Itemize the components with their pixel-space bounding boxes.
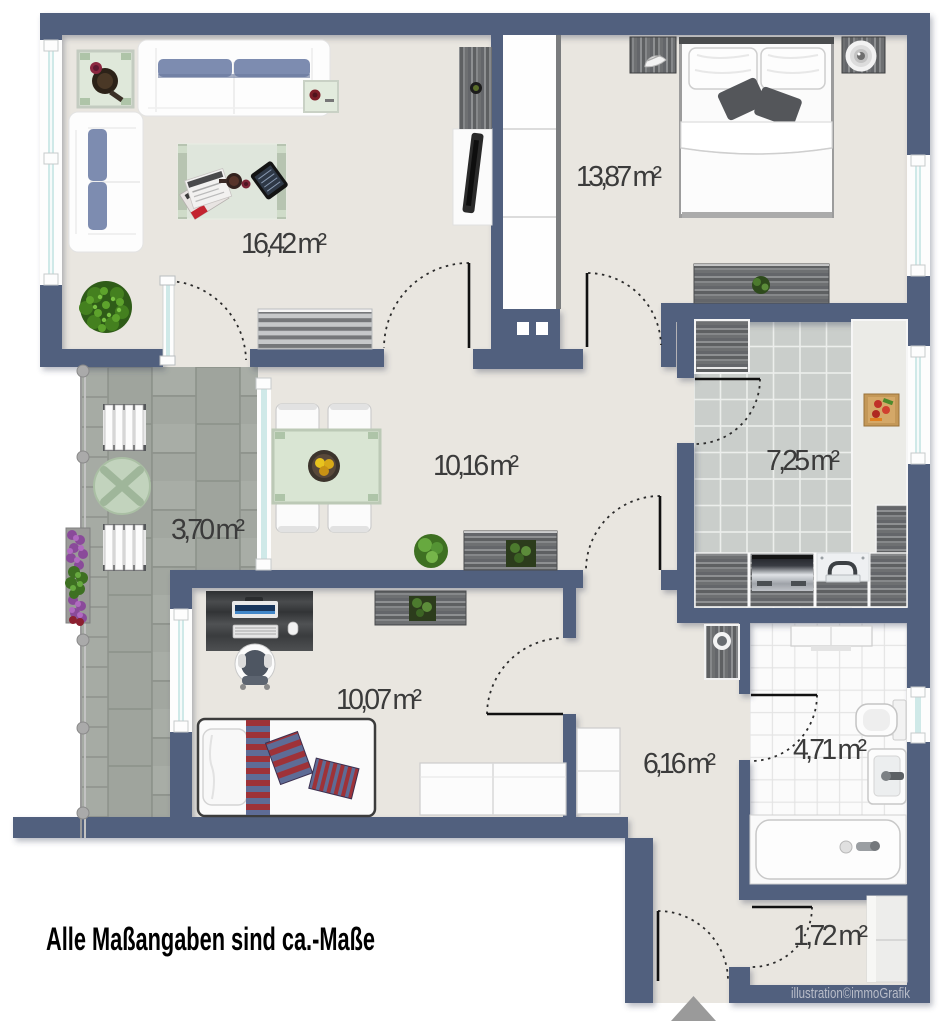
svg-text:10,07 m²: 10,07 m²: [336, 684, 422, 716]
svg-text:4,71 m²: 4,71 m²: [793, 734, 867, 766]
svg-text:16,42 m²: 16,42 m²: [241, 228, 327, 260]
svg-text:6,16 m²: 6,16 m²: [643, 748, 716, 780]
svg-text:10,16 m²: 10,16 m²: [433, 450, 519, 482]
svg-text:3,70 m²: 3,70 m²: [171, 514, 245, 546]
svg-text:illustration©immoGrafik: illustration©immoGrafik: [791, 985, 910, 1002]
svg-text:Alle Maßangaben sind ca.-Maße: Alle Maßangaben sind ca.-Maße: [46, 921, 375, 957]
svg-text:1,72 m²: 1,72 m²: [793, 920, 868, 952]
svg-text:13,87 m²: 13,87 m²: [576, 161, 662, 193]
svg-text:7,25 m²: 7,25 m²: [766, 445, 840, 477]
